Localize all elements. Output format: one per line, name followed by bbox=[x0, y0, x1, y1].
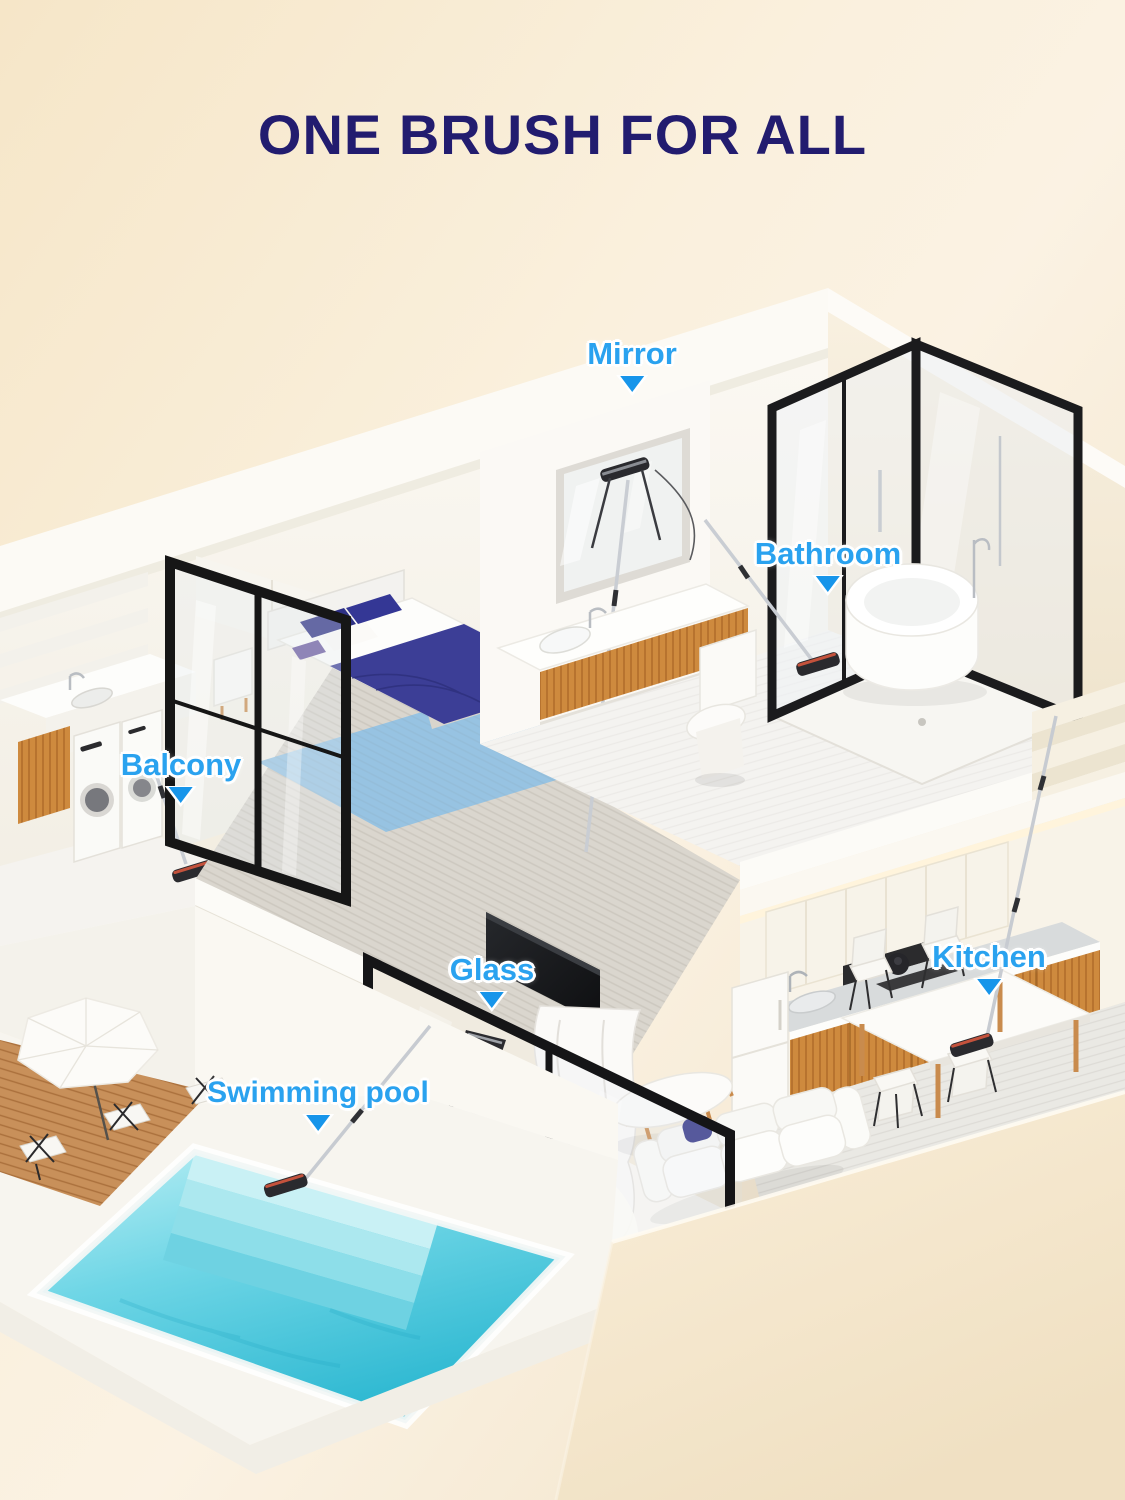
annotation-balcony-label: Balcony bbox=[121, 749, 242, 780]
annotation-swimming-pool-label: Swimming pool bbox=[207, 1078, 429, 1108]
washing-machine bbox=[74, 722, 120, 862]
pointer-down-icon bbox=[812, 575, 844, 596]
pointer-down-icon bbox=[973, 978, 1005, 999]
annotation-glass: Glass bbox=[450, 954, 534, 1012]
pointer-down-icon bbox=[616, 375, 648, 396]
page-title: ONE BRUSH FOR ALL bbox=[258, 102, 867, 167]
balcony-cabinet bbox=[18, 726, 70, 824]
annotation-mirror-label: Mirror bbox=[587, 338, 677, 369]
marketing-graphic: ONE BRUSH FOR ALL Mirror Bathroom Balcon… bbox=[0, 0, 1125, 1500]
pointer-down-icon bbox=[302, 1114, 334, 1135]
pointer-down-icon bbox=[476, 991, 508, 1012]
annotation-kitchen-label: Kitchen bbox=[932, 941, 1046, 972]
pointer-down-icon bbox=[165, 786, 197, 807]
annotation-kitchen: Kitchen bbox=[932, 941, 1046, 999]
annotation-bathroom: Bathroom bbox=[755, 538, 901, 596]
annotation-glass-label: Glass bbox=[450, 954, 534, 985]
annotation-swimming-pool: Swimming pool bbox=[207, 1078, 429, 1135]
annotation-balcony: Balcony bbox=[121, 749, 242, 807]
annotation-mirror: Mirror bbox=[587, 338, 677, 396]
sliding-glass-door bbox=[170, 562, 346, 900]
annotation-bathroom-label: Bathroom bbox=[755, 538, 901, 569]
